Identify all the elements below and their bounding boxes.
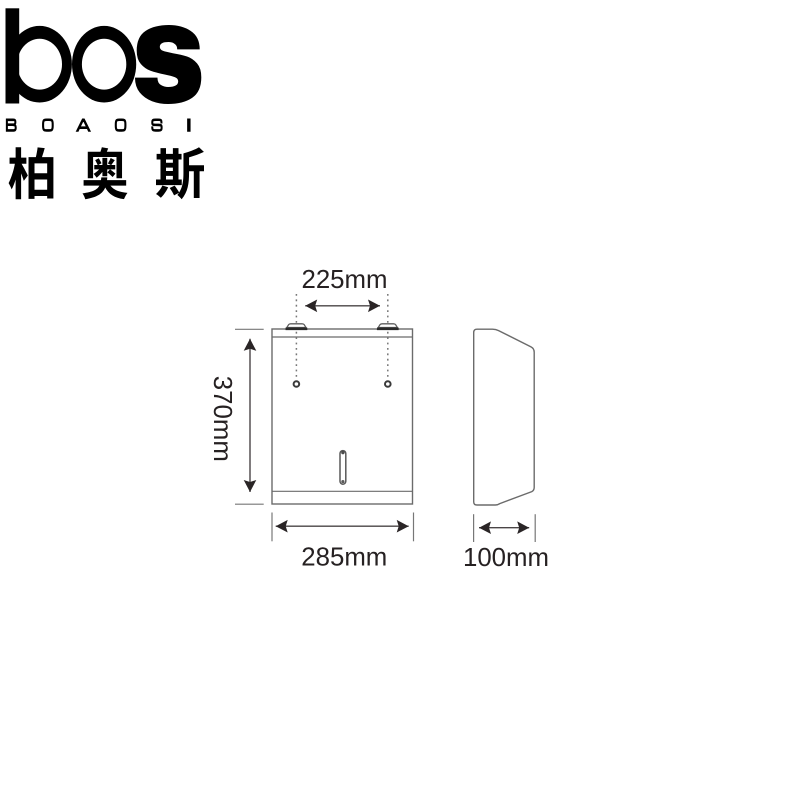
svg-text:100mm: 100mm [463, 544, 549, 572]
svg-text:225mm: 225mm [301, 266, 387, 294]
svg-text:285mm: 285mm [301, 544, 387, 572]
svg-text:370mm: 370mm [208, 376, 236, 462]
